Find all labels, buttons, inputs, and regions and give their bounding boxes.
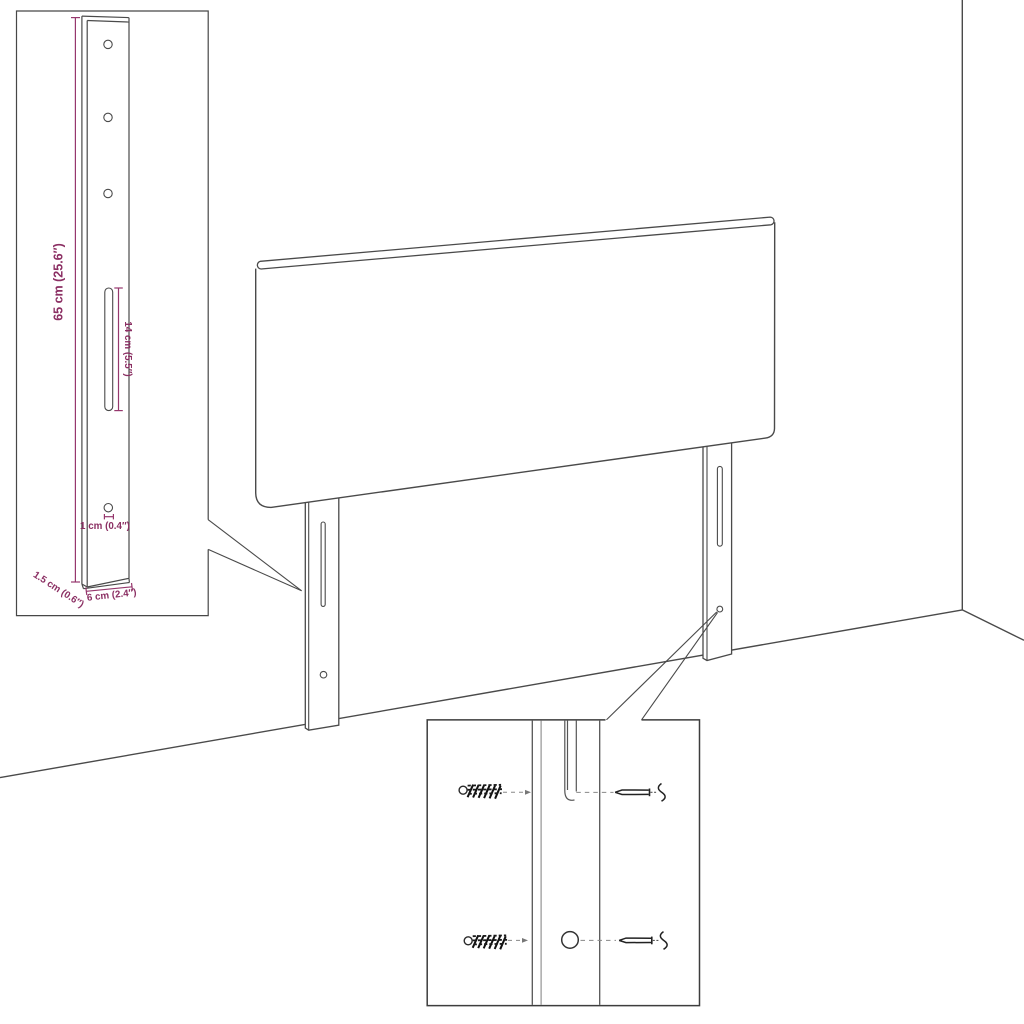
svg-text:1 cm (0.4″): 1 cm (0.4″) <box>80 521 130 532</box>
svg-text:65 cm (25.6″): 65 cm (25.6″) <box>52 243 66 321</box>
svg-text:14 cm (5.5″): 14 cm (5.5″) <box>122 321 133 376</box>
